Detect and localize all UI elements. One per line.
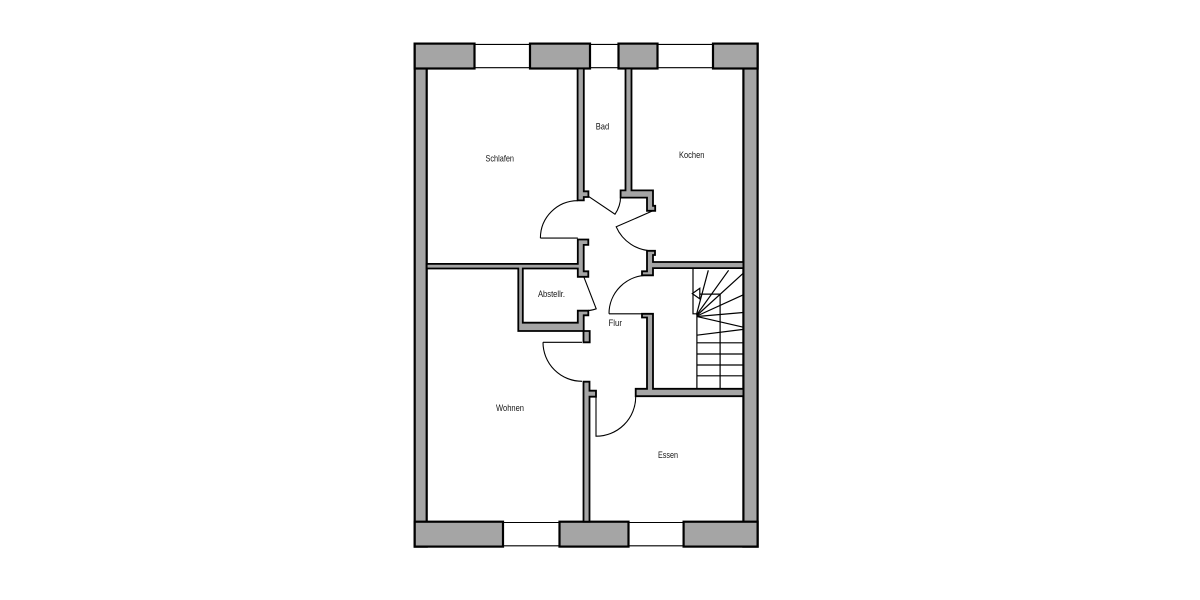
- svg-text:Abstellr.: Abstellr.: [538, 288, 565, 299]
- svg-text:Wohnen: Wohnen: [496, 402, 524, 413]
- svg-text:Kochen: Kochen: [679, 149, 704, 160]
- svg-text:Flur: Flur: [609, 317, 623, 328]
- svg-text:Schlafen: Schlafen: [486, 152, 515, 163]
- svg-text:Bad: Bad: [596, 121, 610, 132]
- svg-text:Essen: Essen: [658, 449, 678, 460]
